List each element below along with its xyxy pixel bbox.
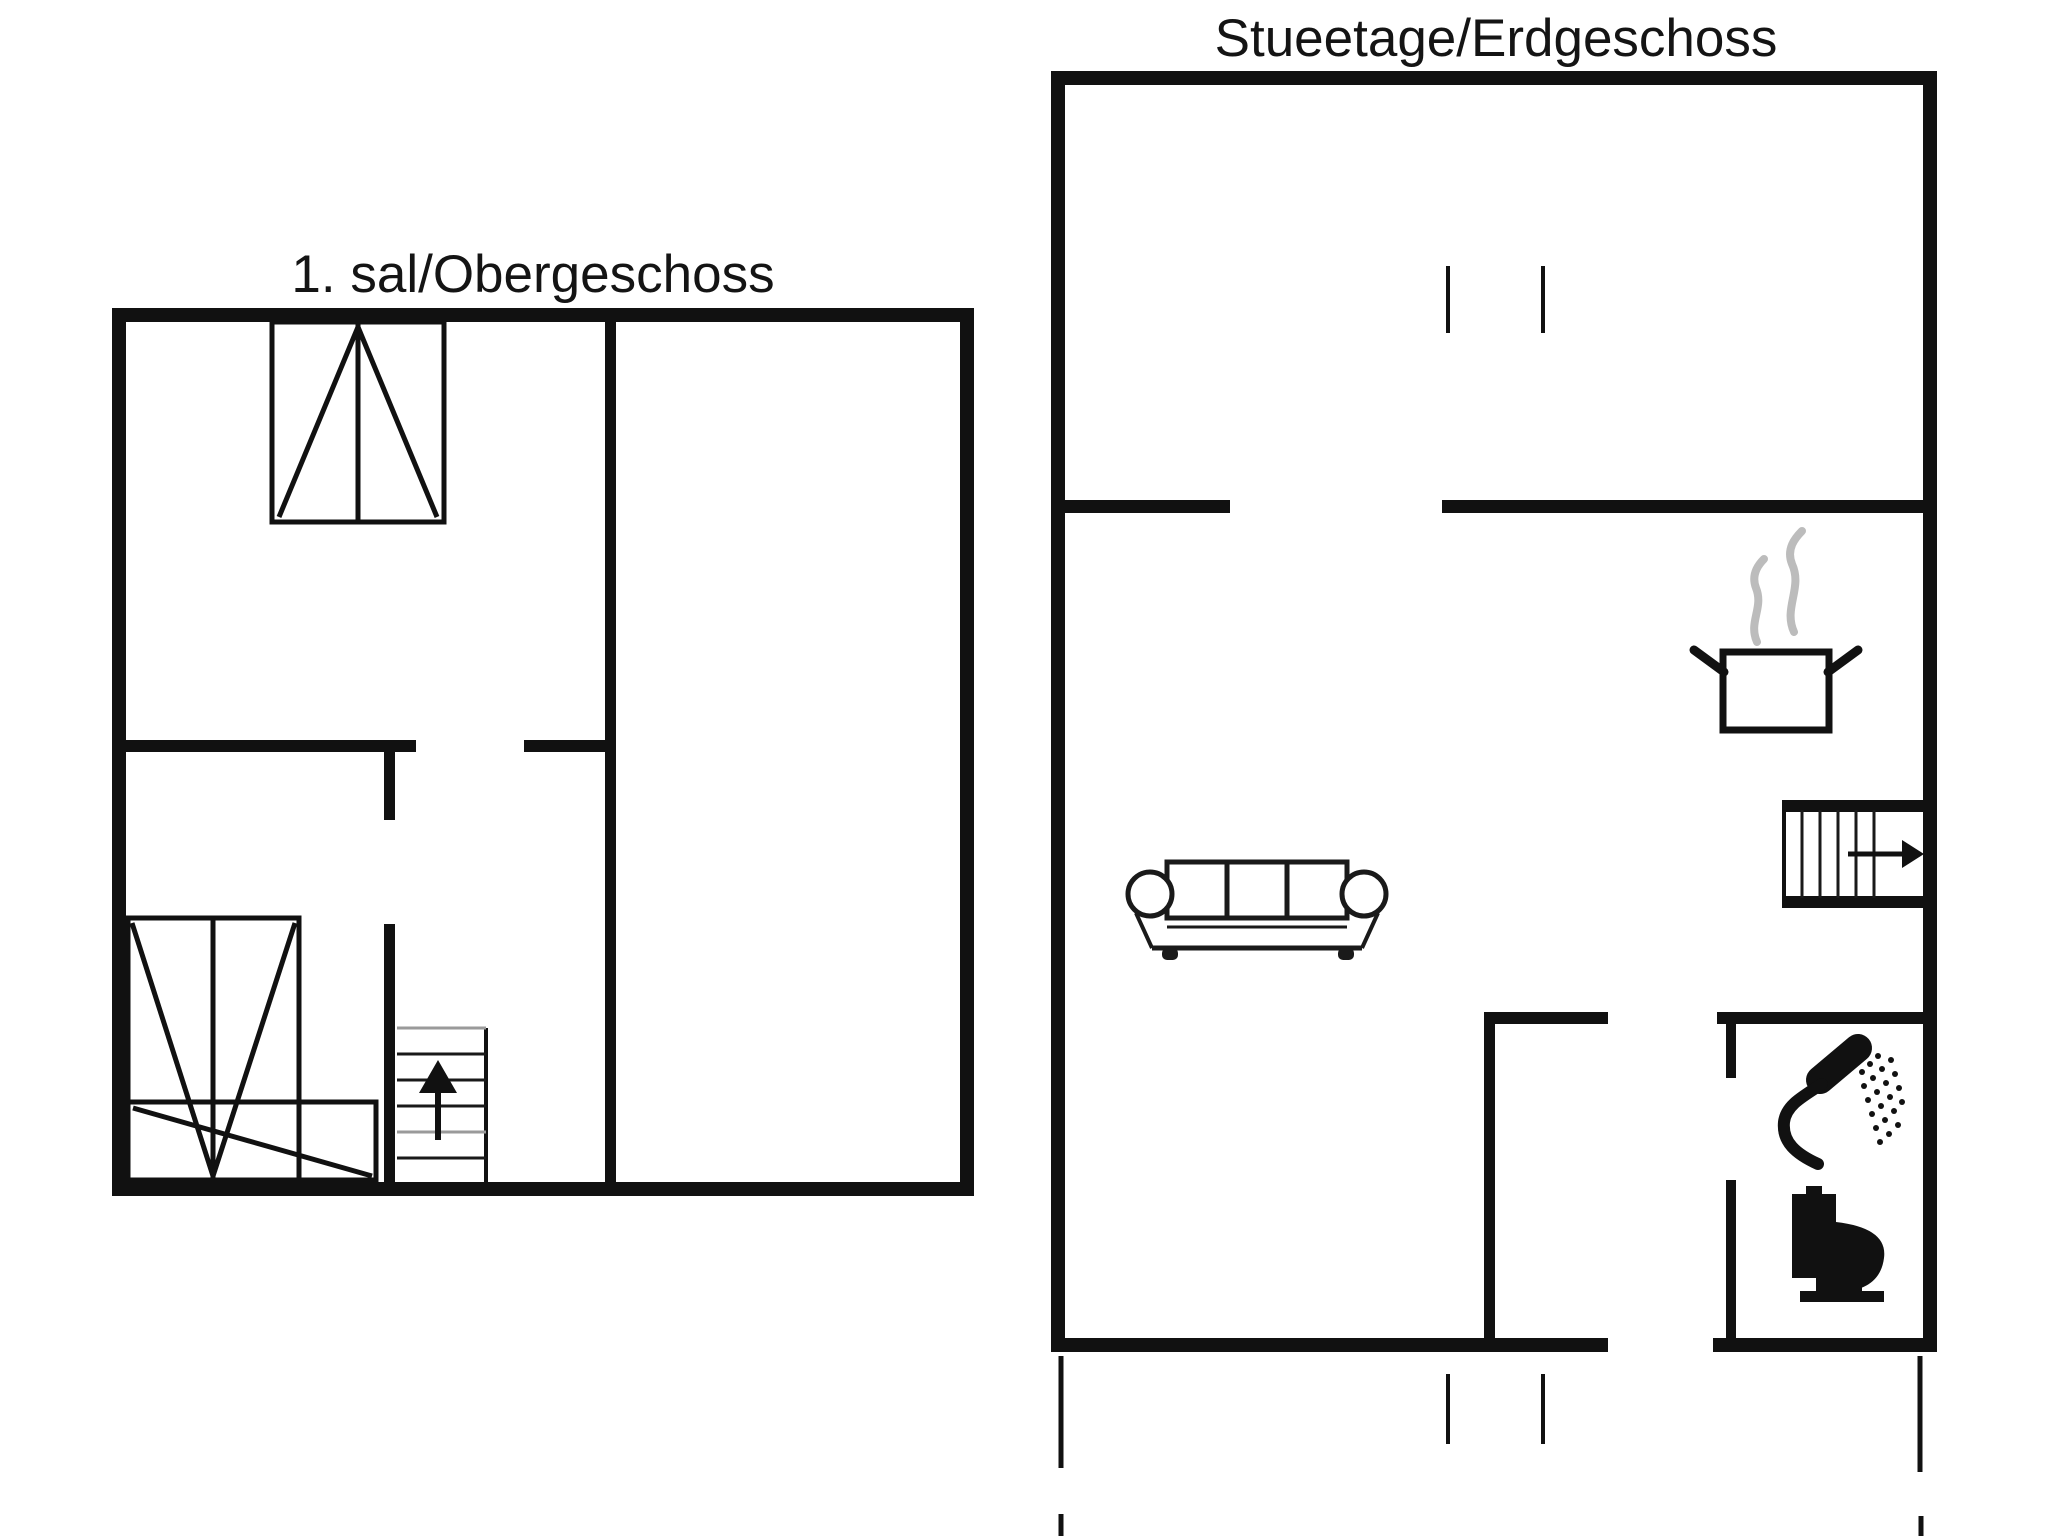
wardrobe-icon: [128, 918, 299, 1180]
arrow-up-icon: [419, 1060, 457, 1140]
wardrobe-icon: [272, 322, 444, 522]
spray-dots: [1859, 1053, 1905, 1145]
cabinet-icon: [128, 1102, 376, 1180]
floor-plan-canvas: 1. sal/Obergeschoss Stueetage/Erdgeschos…: [0, 0, 2048, 1536]
staircase-up: [397, 1028, 486, 1182]
floor-plan-drawing: [0, 0, 2048, 1536]
window-tick-marks: [1448, 266, 1543, 333]
terrace-outline-marks: [1061, 1356, 1921, 1536]
upper-floor-plan: [112, 308, 974, 1196]
toilet-icon: [1792, 1186, 1884, 1302]
staircase-right: [1782, 800, 1924, 908]
steam-icon: [1754, 531, 1802, 642]
ground-floor-plan: [1051, 71, 1937, 1536]
arrow-right-icon: [1848, 840, 1924, 868]
upper-interior-walls: [126, 318, 616, 1186]
cooking-pot-steam-icon: [1694, 531, 1858, 730]
sofa-icon: [1128, 862, 1386, 960]
shower-icon: [1784, 1048, 1905, 1164]
